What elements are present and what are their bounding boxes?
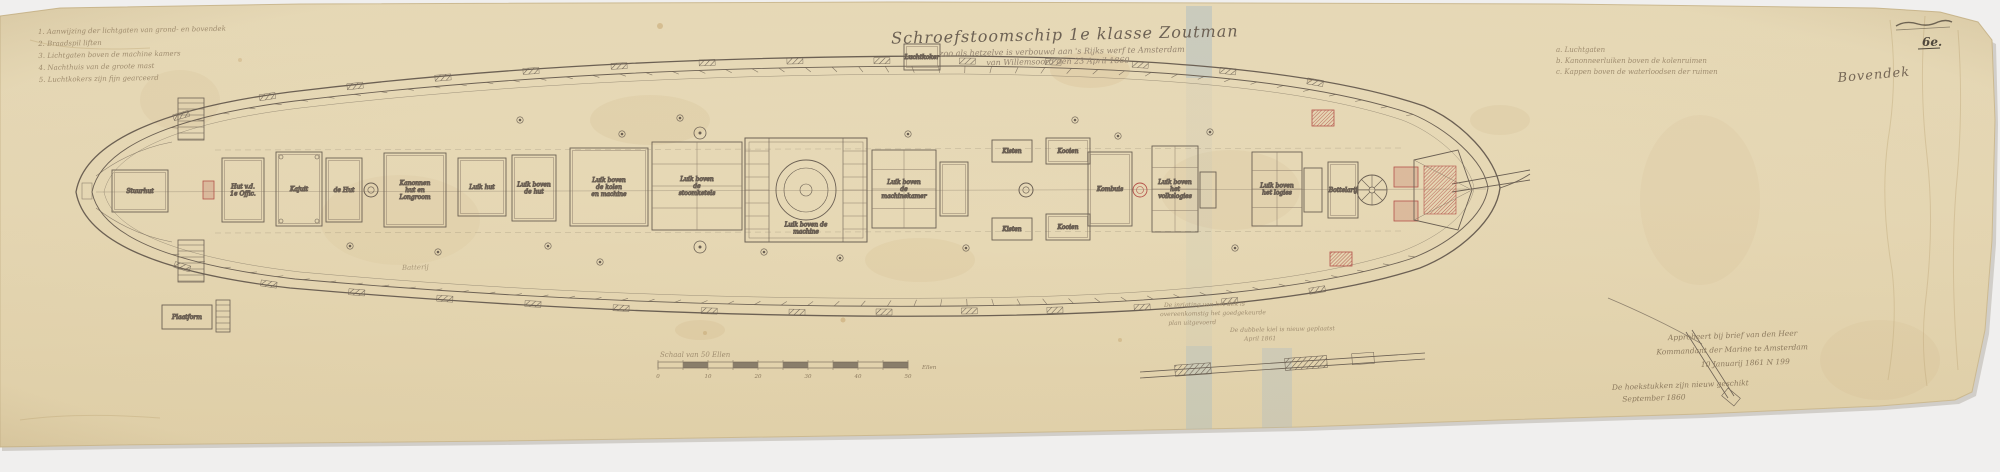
ship-plan-svg: StuurhutHut v.d.1e Offic.Kajuitde HutKan…	[0, 0, 2000, 472]
paper-vignette	[0, 0, 2000, 472]
document-scan: StuurhutHut v.d.1e Offic.Kajuitde HutKan…	[0, 0, 2000, 472]
